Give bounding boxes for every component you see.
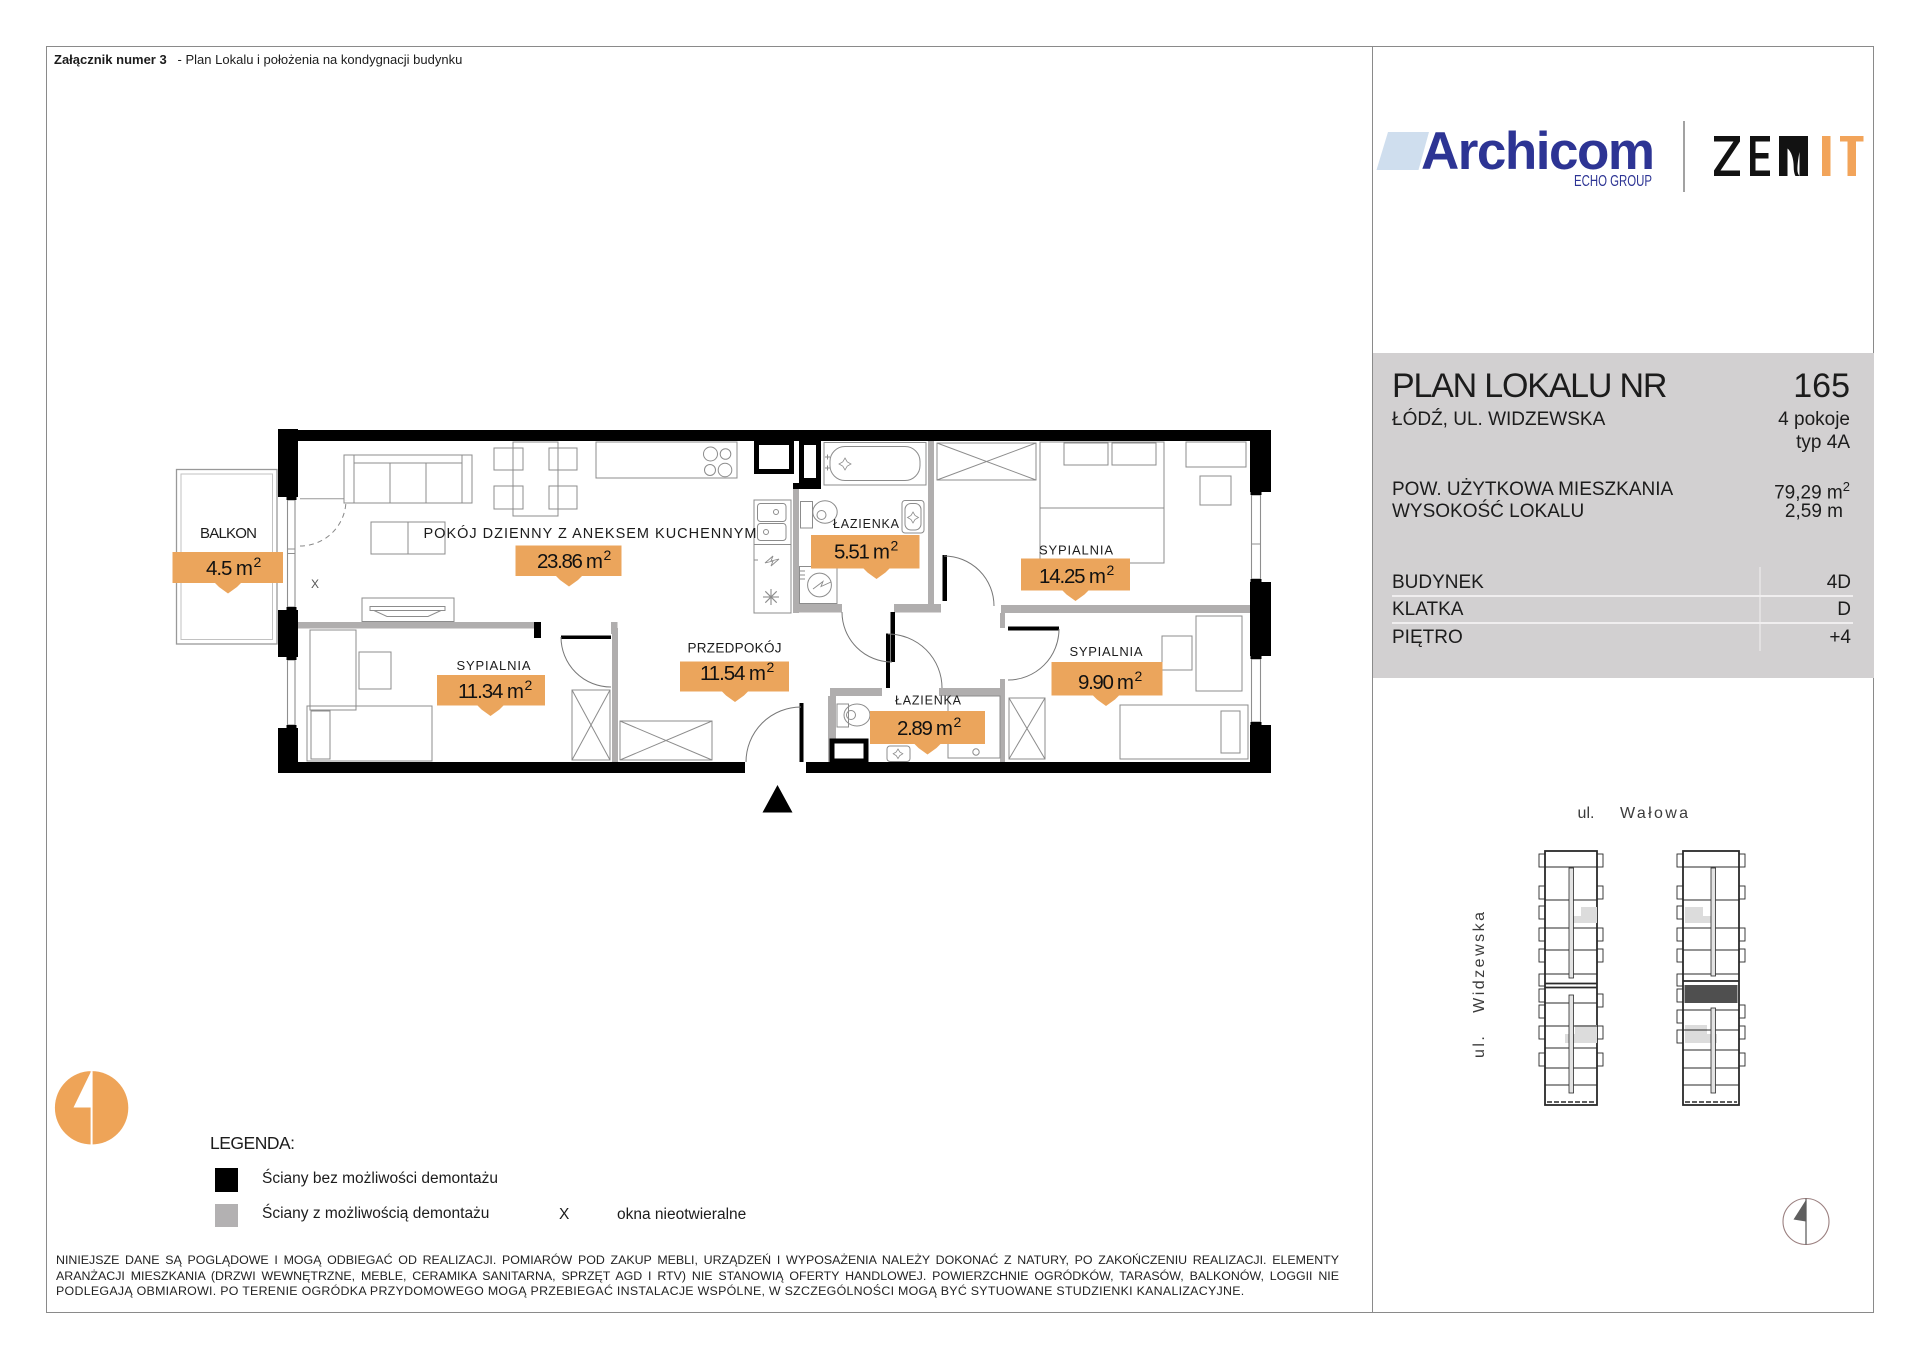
svg-text:ECHO GROUP: ECHO GROUP [1574,173,1652,190]
svg-text:ul.: ul. [1578,805,1595,822]
svg-text:PRZEDPOKÓJ: PRZEDPOKÓJ [688,641,782,656]
svg-text:11.34 m: 11.34 m [458,680,524,703]
svg-text:2: 2 [525,677,533,693]
svg-text:2: 2 [254,554,262,570]
svg-text:SYPIALNIA: SYPIALNIA [457,658,531,673]
svg-text:4.5 m: 4.5 m [206,557,253,580]
svg-text:11.54 m: 11.54 m [700,662,766,685]
svg-text:2: 2 [954,714,962,730]
svg-text:9.90 m: 9.90 m [1078,671,1134,694]
svg-text:2: 2 [1135,668,1143,684]
svg-text:2.89 m: 2.89 m [897,717,953,740]
svg-text:ul. Widzewska: ul. Widzewska [1471,912,1488,1058]
svg-text:SYPIALNIA: SYPIALNIA [1070,644,1143,659]
svg-text:Wałowa: Wałowa [1620,805,1688,822]
svg-text:SYPIALNIA: SYPIALNIA [1039,543,1113,558]
svg-text:2: 2 [767,659,775,675]
svg-text:2: 2 [604,547,612,563]
svg-text:2: 2 [1107,562,1115,578]
svg-text:POKÓJ DZIENNY Z ANEKSEM KUCHEN: POKÓJ DZIENNY Z ANEKSEM KUCHENNYM [424,525,757,542]
svg-text:23.86 m: 23.86 m [537,550,603,573]
svg-text:BALKON: BALKON [200,525,257,542]
svg-text:2: 2 [891,538,899,554]
svg-text:14.25 m: 14.25 m [1039,565,1106,588]
svg-text:5.51 m: 5.51 m [834,541,890,564]
svg-text:X: X [311,577,319,591]
svg-text:ŁAZIENKA: ŁAZIENKA [833,517,900,531]
svg-text:ŁAZIENKA: ŁAZIENKA [895,694,962,708]
